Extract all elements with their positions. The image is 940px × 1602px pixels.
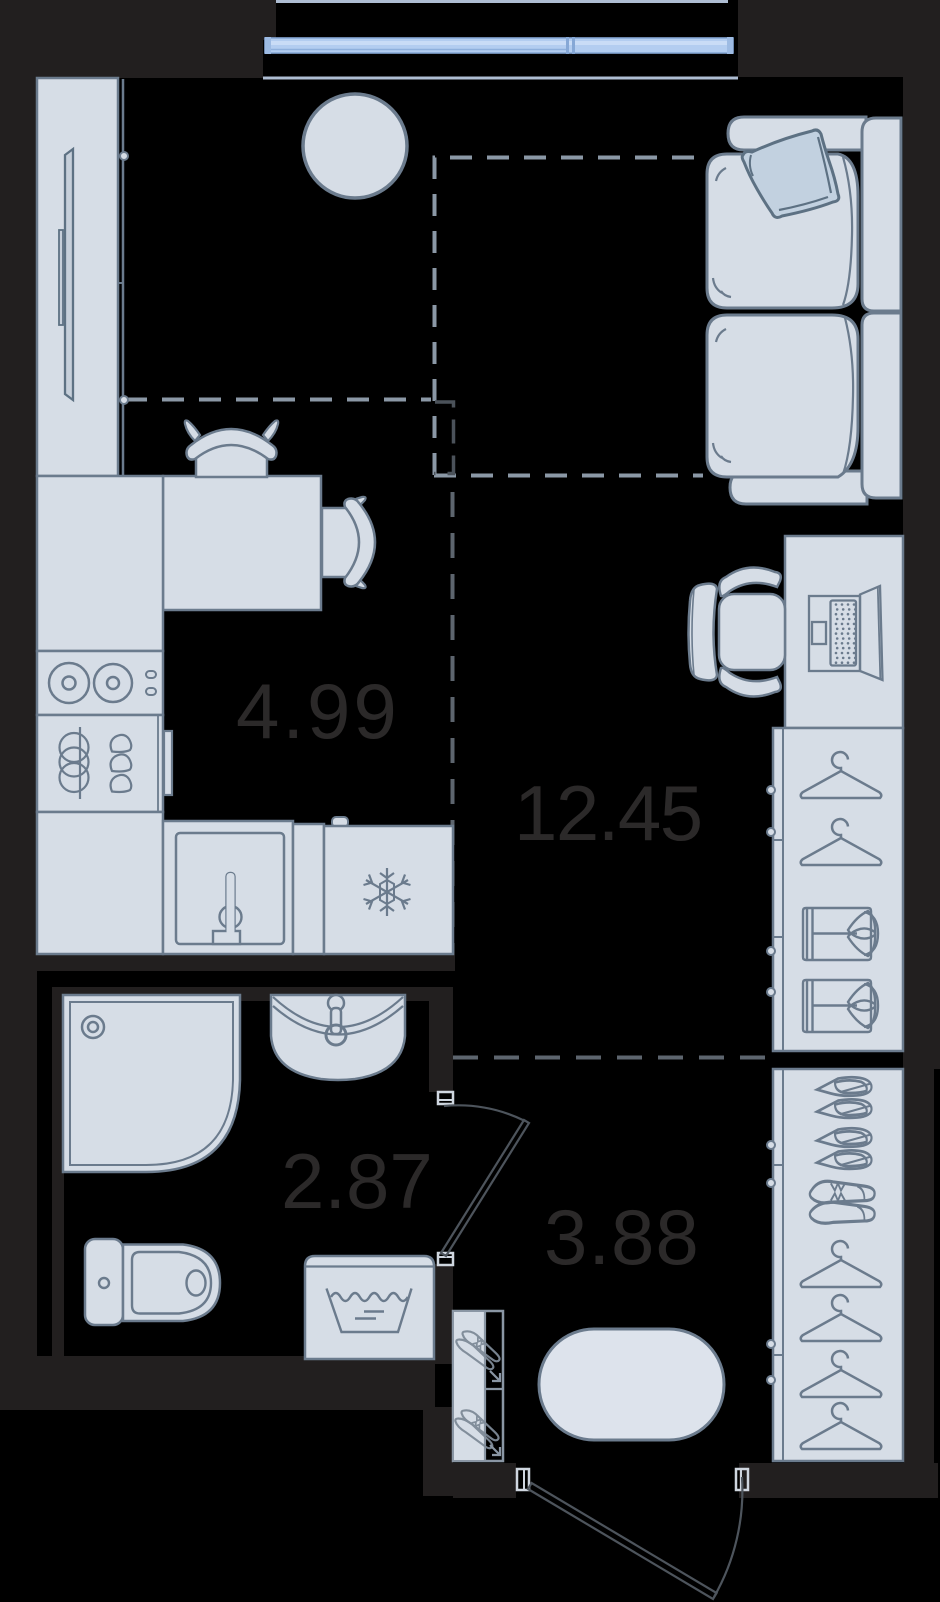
svg-text:2.87: 2.87 bbox=[281, 1137, 433, 1225]
svg-text:3.88: 3.88 bbox=[544, 1193, 700, 1281]
svg-text:4.99: 4.99 bbox=[236, 667, 400, 755]
svg-text:12.45: 12.45 bbox=[514, 769, 702, 857]
